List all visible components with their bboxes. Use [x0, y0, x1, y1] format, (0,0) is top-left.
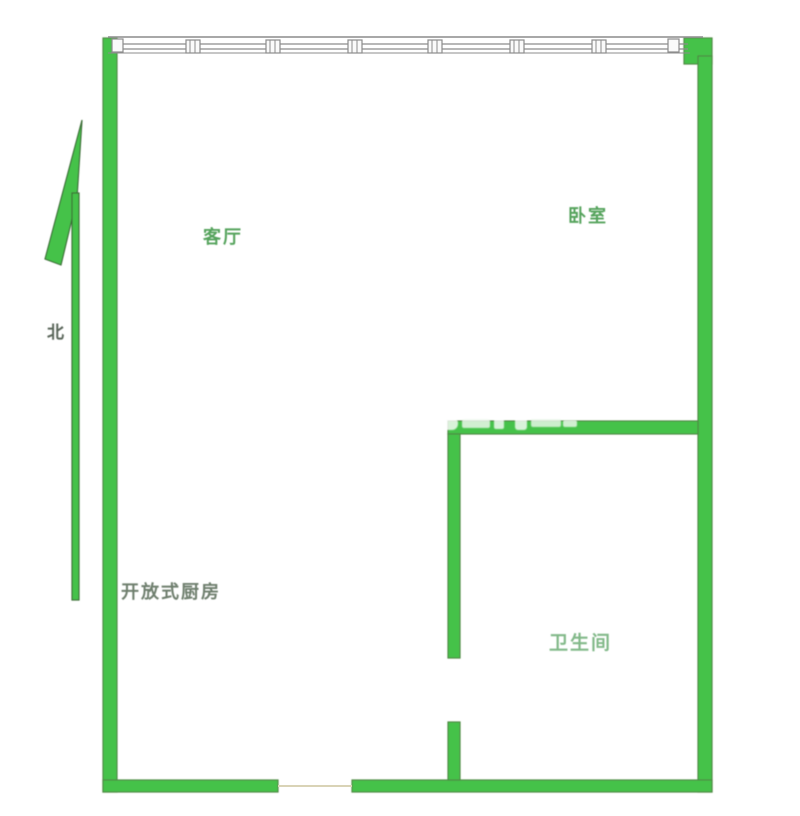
window-mullion [266, 40, 280, 53]
bathroom-label: 卫生间 [549, 628, 612, 655]
window-mullion [592, 40, 606, 53]
window-mullion [510, 40, 524, 53]
window-end-cap-right [668, 39, 679, 52]
wall-right [698, 56, 712, 792]
bedroom-label: 卧室 [568, 202, 608, 228]
window-mullion [348, 40, 362, 53]
north-arrow [45, 120, 82, 600]
window-mullion [186, 40, 200, 53]
wall-bathroom-left-lower [448, 722, 460, 780]
wall-left [103, 38, 117, 792]
north-label: 北 [47, 318, 64, 343]
wall-bathroom-left-upper [448, 434, 460, 658]
living-room-label: 客厅 [203, 223, 243, 249]
wall-bottom-left-segment [103, 780, 278, 792]
open-kitchen-label: 开放式厨房 [121, 578, 221, 604]
north-arrow-shaft [72, 193, 79, 600]
wall-bottom-right-segment [352, 780, 712, 792]
window-band [108, 37, 703, 53]
floorplan-drawing [0, 0, 800, 816]
window-end-cap-left [112, 39, 123, 52]
window-mullion [428, 40, 442, 53]
floorplan-canvas: 客厅 卧室 开放式厨房 卫生间 北 [0, 0, 800, 816]
